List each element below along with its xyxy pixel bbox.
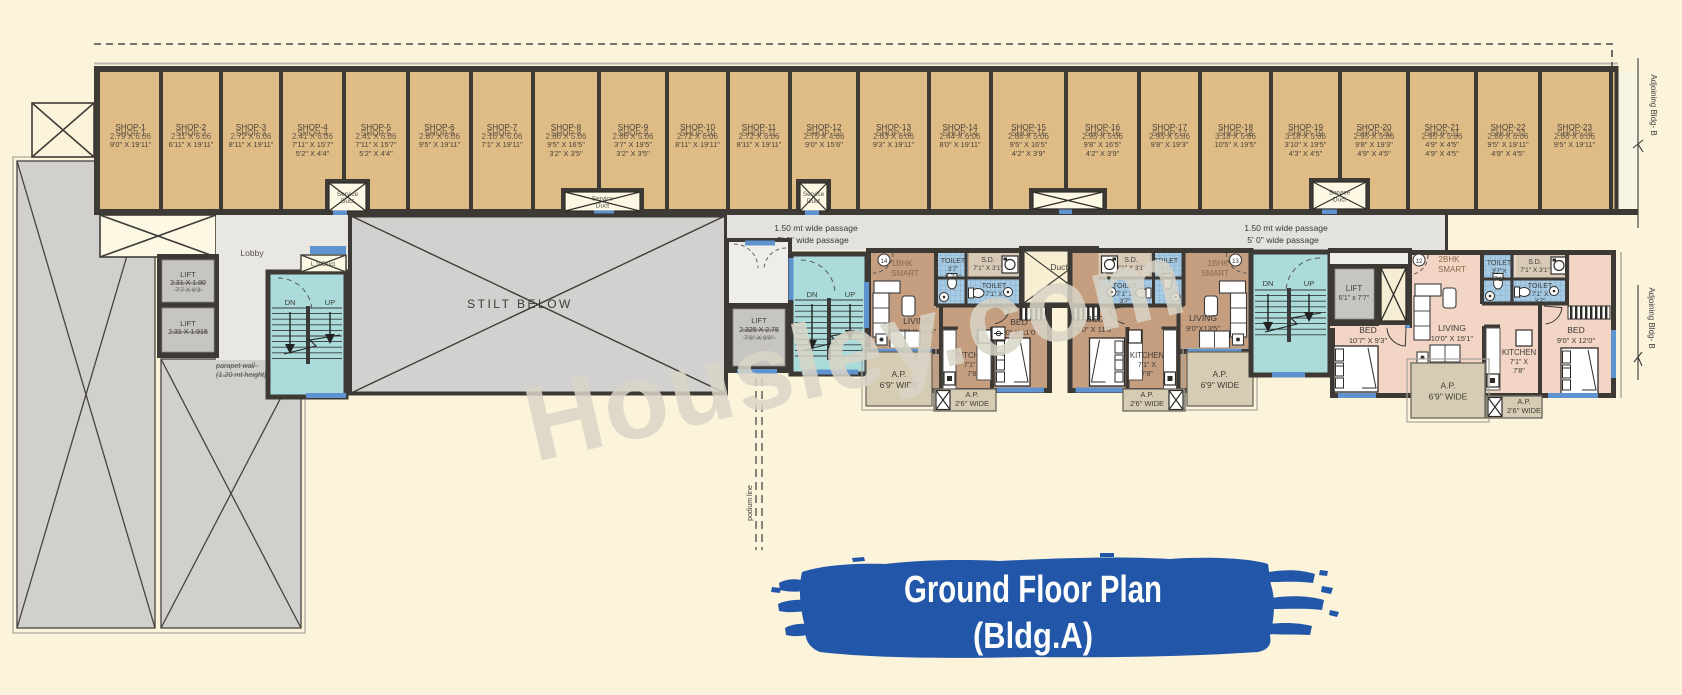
svg-text:L.V.Duct: L.V.Duct [311, 261, 336, 268]
svg-text:10'5" X 19'5": 10'5" X 19'5" [1215, 140, 1257, 149]
svg-text:8'11" X 19'11": 8'11" X 19'11" [229, 140, 274, 149]
svg-text:7'1" X 19'11": 7'1" X 19'11" [481, 140, 523, 149]
svg-text:LIFT: LIFT [1346, 284, 1363, 293]
svg-text:9'5" X 19'11": 9'5" X 19'11" [419, 140, 461, 149]
svg-text:1BHK: 1BHK [1208, 259, 1230, 268]
svg-text:Service: Service [1329, 190, 1351, 197]
svg-text:KITCHEN: KITCHEN [1130, 351, 1164, 360]
svg-text:4'9" X 4'5": 4'9" X 4'5" [1425, 140, 1459, 149]
svg-text:7'11" X 15'7": 7'11" X 15'7" [292, 140, 334, 149]
svg-text:5'2" X 4'4": 5'2" X 4'4" [359, 149, 393, 158]
svg-text:1.50 mt wide passage: 1.50 mt wide passage [1244, 223, 1328, 233]
svg-text:7'8": 7'8" [1141, 371, 1153, 378]
svg-text:7'8": 7'8" [1513, 368, 1525, 375]
svg-text:4'9" X 4'5": 4'9" X 4'5" [1491, 149, 1525, 158]
svg-text:1.50 mt wide passage: 1.50 mt wide passage [774, 223, 858, 233]
svg-text:9'5" X 16'5": 9'5" X 16'5" [547, 140, 585, 149]
svg-text:1BHK: 1BHK [892, 259, 914, 268]
svg-text:UP: UP [325, 298, 335, 307]
svg-text:7'7 X 6'3: 7'7 X 6'3 [176, 287, 201, 294]
svg-text:12: 12 [1416, 259, 1423, 265]
svg-text:2.31 X 1.915: 2.31 X 1.915 [168, 329, 208, 336]
svg-text:Duct: Duct [1333, 197, 1346, 204]
svg-text:KITCHEN: KITCHEN [1502, 348, 1536, 357]
svg-text:9'8" X 19'3": 9'8" X 19'3" [1355, 140, 1393, 149]
svg-text:3'2" X 3'5": 3'2" X 3'5" [549, 149, 583, 158]
svg-text:TOILET: TOILET [1487, 260, 1512, 267]
svg-text:Ground Floor Plan: Ground Floor Plan [904, 569, 1162, 611]
svg-text:8'11" X 19'11": 8'11" X 19'11" [675, 140, 720, 149]
svg-text:DN: DN [285, 298, 296, 307]
svg-text:S.D.: S.D. [1528, 259, 1542, 266]
svg-text:3'7"X: 3'7"X [1491, 268, 1507, 275]
svg-text:2'6" WIDE: 2'6" WIDE [1507, 406, 1541, 415]
svg-text:(1.20 mt height): (1.20 mt height) [216, 370, 266, 379]
svg-text:9'8" X 16'5": 9'8" X 16'5" [1084, 140, 1122, 149]
svg-text:LIFT: LIFT [180, 319, 196, 328]
svg-text:A.P.: A.P. [1140, 390, 1153, 399]
svg-text:7'1" X 3'1": 7'1" X 3'1" [1520, 267, 1550, 274]
svg-text:6'11" X 19'11": 6'11" X 19'11" [169, 140, 214, 149]
svg-text:7'11" X 15'7": 7'11" X 15'7" [355, 140, 397, 149]
svg-text:Service: Service [592, 196, 614, 203]
svg-text:7'1" X: 7'1" X [1510, 359, 1529, 366]
svg-text:9'0" X 19'11": 9'0" X 19'11" [110, 140, 152, 149]
svg-text:BED: BED [1359, 325, 1376, 335]
svg-text:A.P.: A.P. [1213, 369, 1228, 379]
svg-text:2'6" WIDE: 2'6" WIDE [955, 399, 989, 408]
svg-text:Service: Service [803, 191, 825, 198]
svg-text:3'7" X 19'5": 3'7" X 19'5" [614, 140, 652, 149]
svg-text:parapet wall: parapet wall [215, 361, 255, 370]
svg-text:SMART: SMART [1201, 269, 1229, 278]
svg-text:LIVING: LIVING [1438, 323, 1466, 333]
svg-text:4'3" X 4'5": 4'3" X 4'5" [1289, 149, 1323, 158]
svg-text:DN: DN [807, 290, 818, 299]
svg-text:8'0" X 19'11": 8'0" X 19'11" [939, 140, 981, 149]
svg-text:TOILET: TOILET [941, 258, 966, 265]
svg-text:7'1" X: 7'1" X [1138, 362, 1157, 369]
svg-text:6'1" x 7'7": 6'1" x 7'7" [1339, 295, 1370, 302]
svg-text:(Bldg.A): (Bldg.A) [973, 615, 1093, 656]
svg-text:A.P.: A.P. [965, 390, 978, 399]
svg-text:UP: UP [1304, 279, 1314, 288]
svg-text:4'2" X 3'9": 4'2" X 3'9" [1086, 149, 1120, 158]
svg-text:podium line: podium line [747, 485, 754, 521]
svg-text:A.P.: A.P. [1441, 381, 1456, 391]
svg-text:STILT BELOW: STILT BELOW [467, 297, 573, 311]
svg-text:Adjoining Bldg- B: Adjoining Bldg- B [1649, 74, 1658, 135]
svg-text:3'2" X 3'5": 3'2" X 3'5" [616, 149, 650, 158]
svg-text:LIFT: LIFT [180, 270, 196, 279]
svg-text:7'1" X: 7'1" X [1532, 291, 1550, 298]
svg-text:9'0" X 12'0": 9'0" X 12'0" [1557, 336, 1596, 345]
svg-text:Adjoining Bldg- B: Adjoining Bldg- B [1647, 287, 1656, 348]
svg-text:A.P.: A.P. [1517, 397, 1530, 406]
svg-text:4'9" X 4'5": 4'9" X 4'5" [1425, 149, 1459, 158]
svg-text:9'3" X 19'11": 9'3" X 19'11" [873, 140, 915, 149]
svg-text:Duct: Duct [341, 198, 354, 205]
svg-text:Lobby: Lobby [240, 248, 264, 258]
svg-text:14: 14 [881, 259, 888, 265]
svg-text:Duct: Duct [807, 198, 820, 205]
svg-text:TOILET: TOILET [1528, 283, 1553, 290]
svg-text:9'8" X 19'3": 9'8" X 19'3" [1151, 140, 1189, 149]
svg-text:10'0" X 15'1": 10'0" X 15'1" [1431, 334, 1474, 343]
svg-text:6'9" WIDE: 6'9" WIDE [1201, 380, 1240, 390]
svg-text:4'9" X 4'5": 4'9" X 4'5" [1357, 149, 1391, 158]
svg-text:3'10" X 19'5": 3'10" X 19'5" [1285, 140, 1327, 149]
svg-text:SMART: SMART [1438, 265, 1466, 274]
svg-text:9'5" X 16'5": 9'5" X 16'5" [1010, 140, 1048, 149]
svg-text:Duct: Duct [596, 203, 609, 210]
svg-text:5' 0" wide passage: 5' 0" wide passage [1247, 235, 1319, 245]
svg-text:2.31 X 1.90: 2.31 X 1.90 [170, 280, 206, 287]
svg-text:Service: Service [337, 191, 359, 198]
svg-text:4'2" X 3'9": 4'2" X 3'9" [1012, 149, 1046, 158]
svg-text:6'9" WIDE: 6'9" WIDE [1429, 392, 1468, 402]
svg-text:9'0" X 15'6": 9'0" X 15'6" [805, 140, 843, 149]
svg-text:9'5" X 19'11": 9'5" X 19'11" [1487, 140, 1529, 149]
svg-text:DN: DN [1263, 279, 1274, 288]
svg-text:9'5" X 19'11": 9'5" X 19'11" [1554, 140, 1596, 149]
svg-text:5'2" X 4'4": 5'2" X 4'4" [296, 149, 330, 158]
svg-text:2'6" WIDE: 2'6" WIDE [1130, 399, 1164, 408]
svg-text:10'7" X 9'3": 10'7" X 9'3" [1349, 336, 1388, 345]
svg-text:13: 13 [1232, 259, 1239, 265]
svg-text:2BHK: 2BHK [1439, 255, 1461, 264]
svg-text:8'11" X 19'11": 8'11" X 19'11" [737, 140, 782, 149]
svg-text:BED: BED [1567, 325, 1584, 335]
